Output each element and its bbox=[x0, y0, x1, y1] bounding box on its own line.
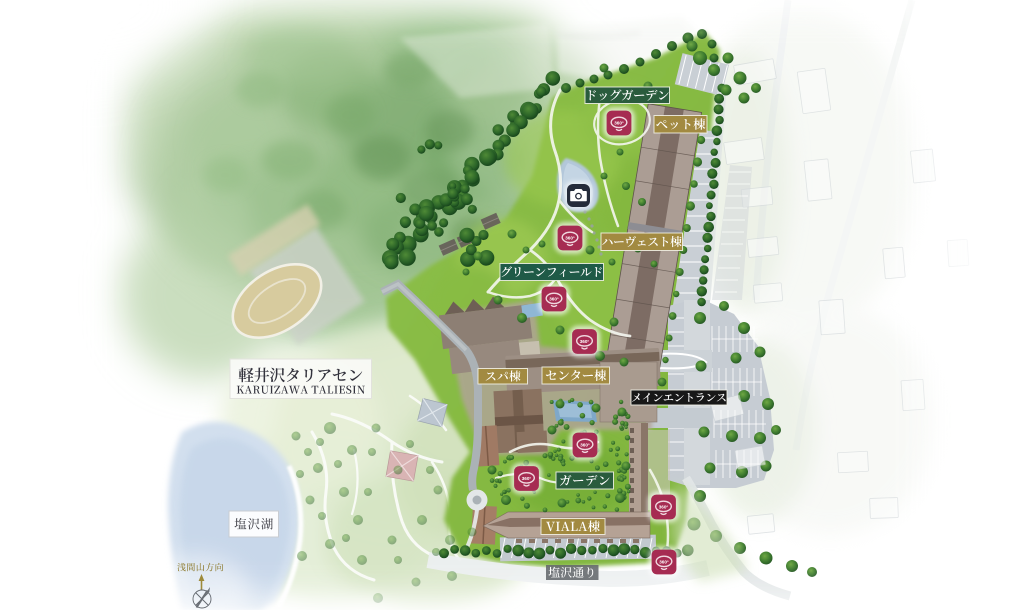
svg-text:360°: 360° bbox=[614, 120, 624, 125]
svg-text:360°: 360° bbox=[522, 476, 532, 481]
svg-text:360°: 360° bbox=[659, 504, 669, 509]
svg-text:360°: 360° bbox=[549, 296, 559, 301]
svg-text:360°: 360° bbox=[580, 442, 590, 447]
svg-text:360°: 360° bbox=[659, 559, 669, 564]
svg-text:360°: 360° bbox=[580, 339, 590, 344]
svg-text:360°: 360° bbox=[565, 235, 575, 240]
